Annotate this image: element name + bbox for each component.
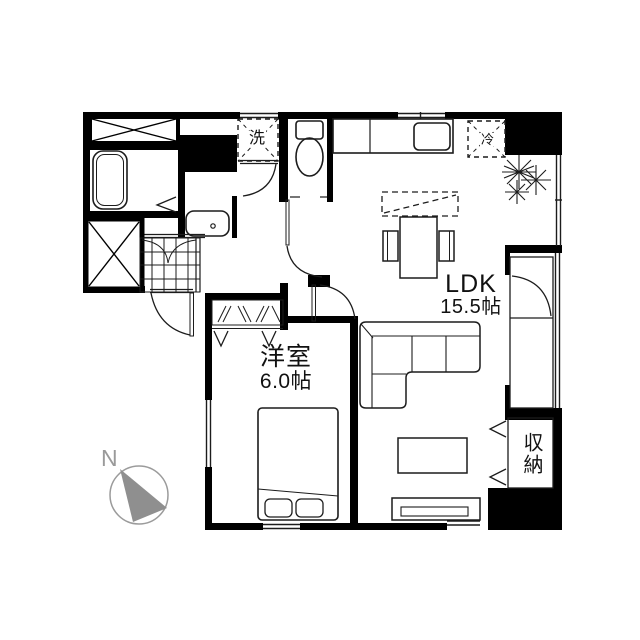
balcony-door [510, 276, 553, 318]
storage-label: 収納 [521, 432, 541, 476]
ldk-door [312, 285, 355, 321]
window-right [555, 155, 562, 246]
closet [212, 300, 283, 346]
folding-door-mark-left [214, 331, 228, 346]
plant [502, 155, 551, 204]
balcony-railing [556, 253, 560, 408]
bedroom-size: 6.0帖 [244, 371, 328, 392]
low-table [398, 438, 467, 473]
refrigerator-label: 冷 [480, 133, 495, 146]
washroom-door [243, 164, 276, 196]
pillow-left [265, 499, 292, 517]
bedroom-label: 洋室 [244, 345, 328, 370]
storage-folding-mark-top [490, 421, 506, 437]
toilet-door [286, 200, 322, 277]
bedroom-furniture [258, 408, 338, 520]
floor-plan-drawing [0, 0, 640, 640]
washing-machine-label: 洗 [248, 131, 266, 147]
compass [110, 466, 168, 524]
balcony-strip [510, 257, 553, 408]
entrance-tiles [140, 238, 200, 292]
window-bottom-tv [447, 521, 480, 525]
kitchen-counter [333, 119, 453, 153]
window-top-washer [240, 114, 278, 118]
pillow-right [296, 499, 323, 517]
dining-table-set [383, 217, 454, 278]
dining-table [400, 217, 437, 278]
chair-right [439, 231, 454, 261]
tv-board [392, 498, 480, 520]
kitchen-sink [414, 123, 450, 150]
entrance-door [151, 293, 194, 336]
hanger-pipe-marks [218, 306, 280, 322]
sofa [360, 322, 480, 408]
windows [207, 112, 563, 529]
window-bedroom-left [207, 400, 211, 467]
shaft-left [86, 219, 142, 289]
bathtub [93, 151, 127, 209]
storage-folding-mark-bottom [490, 469, 506, 485]
ldk-room-label: LDK [430, 272, 512, 297]
walls [83, 112, 562, 530]
chair-left [383, 231, 398, 261]
compass-north-label: N [101, 447, 118, 470]
window-kitchen [398, 112, 445, 119]
bath-door-mark [157, 197, 176, 212]
window-bottom-bed [263, 525, 300, 529]
shaft-top [90, 117, 178, 143]
ldk-room-size: 15.5帖 [426, 297, 516, 317]
washbasin [186, 211, 229, 236]
floor-plan: LDK 15.5帖 洋室 6.0帖 収納 洗 冷 N [0, 0, 640, 640]
bed [258, 408, 338, 520]
overhead-counter [382, 192, 458, 216]
toilet [296, 121, 323, 176]
